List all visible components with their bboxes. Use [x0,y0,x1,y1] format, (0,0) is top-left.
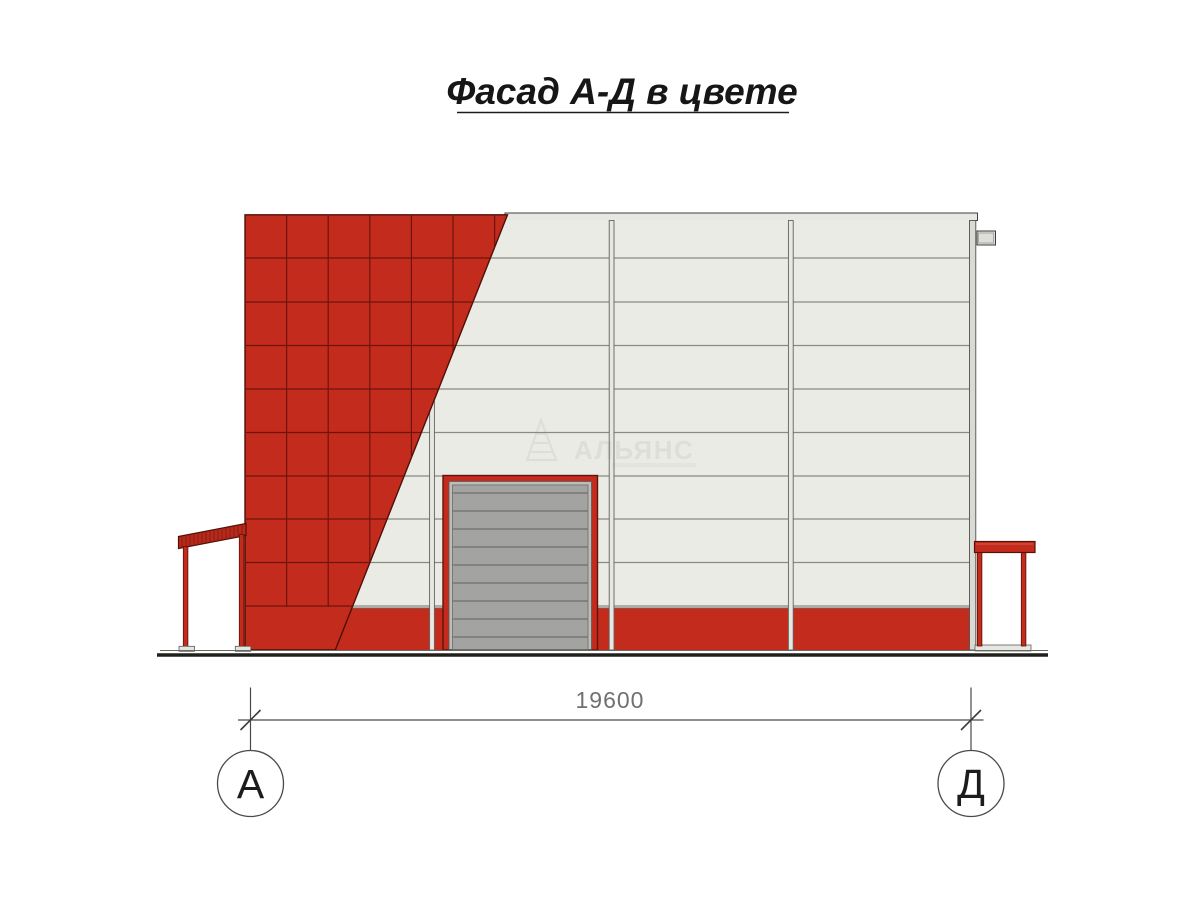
facade-drawing-canvas: Фасад А-Д в цвете [0,0,1200,900]
corner-column [970,221,976,651]
right-canopy [975,542,1036,652]
garage-door [443,476,598,651]
left-canopy [179,520,251,651]
dimension-label: 19600 [576,687,645,713]
canopy-roof [179,524,247,549]
axis-label-a: А [237,761,265,807]
axis-marker-a: А [218,751,284,817]
mullion [788,221,793,651]
watermark-tagline [612,463,696,468]
axis-label-d: Д [957,761,985,807]
page-title: Фасад А-Д в цвете [446,71,797,112]
axis-marker-d: Д [938,751,1004,817]
dimension-annotation: 19600 А Д [218,687,1005,817]
canopy-post [977,553,982,647]
canopy-roof [975,542,1036,553]
watermark-text: АЛЬЯНС [574,435,694,465]
scupper-box [977,231,996,245]
canopy-post [239,535,244,651]
parapet-cap [505,213,978,221]
mullion [430,401,435,650]
facade-drawing-page: Фасад А-Д в цвете [0,0,1200,900]
facade [157,213,1048,655]
ground-line [157,651,1048,656]
canopy-post [183,547,188,651]
door-panel [453,485,589,650]
drawing-header: Фасад А-Д в цвете [446,71,797,113]
canopy-post [1021,553,1026,647]
